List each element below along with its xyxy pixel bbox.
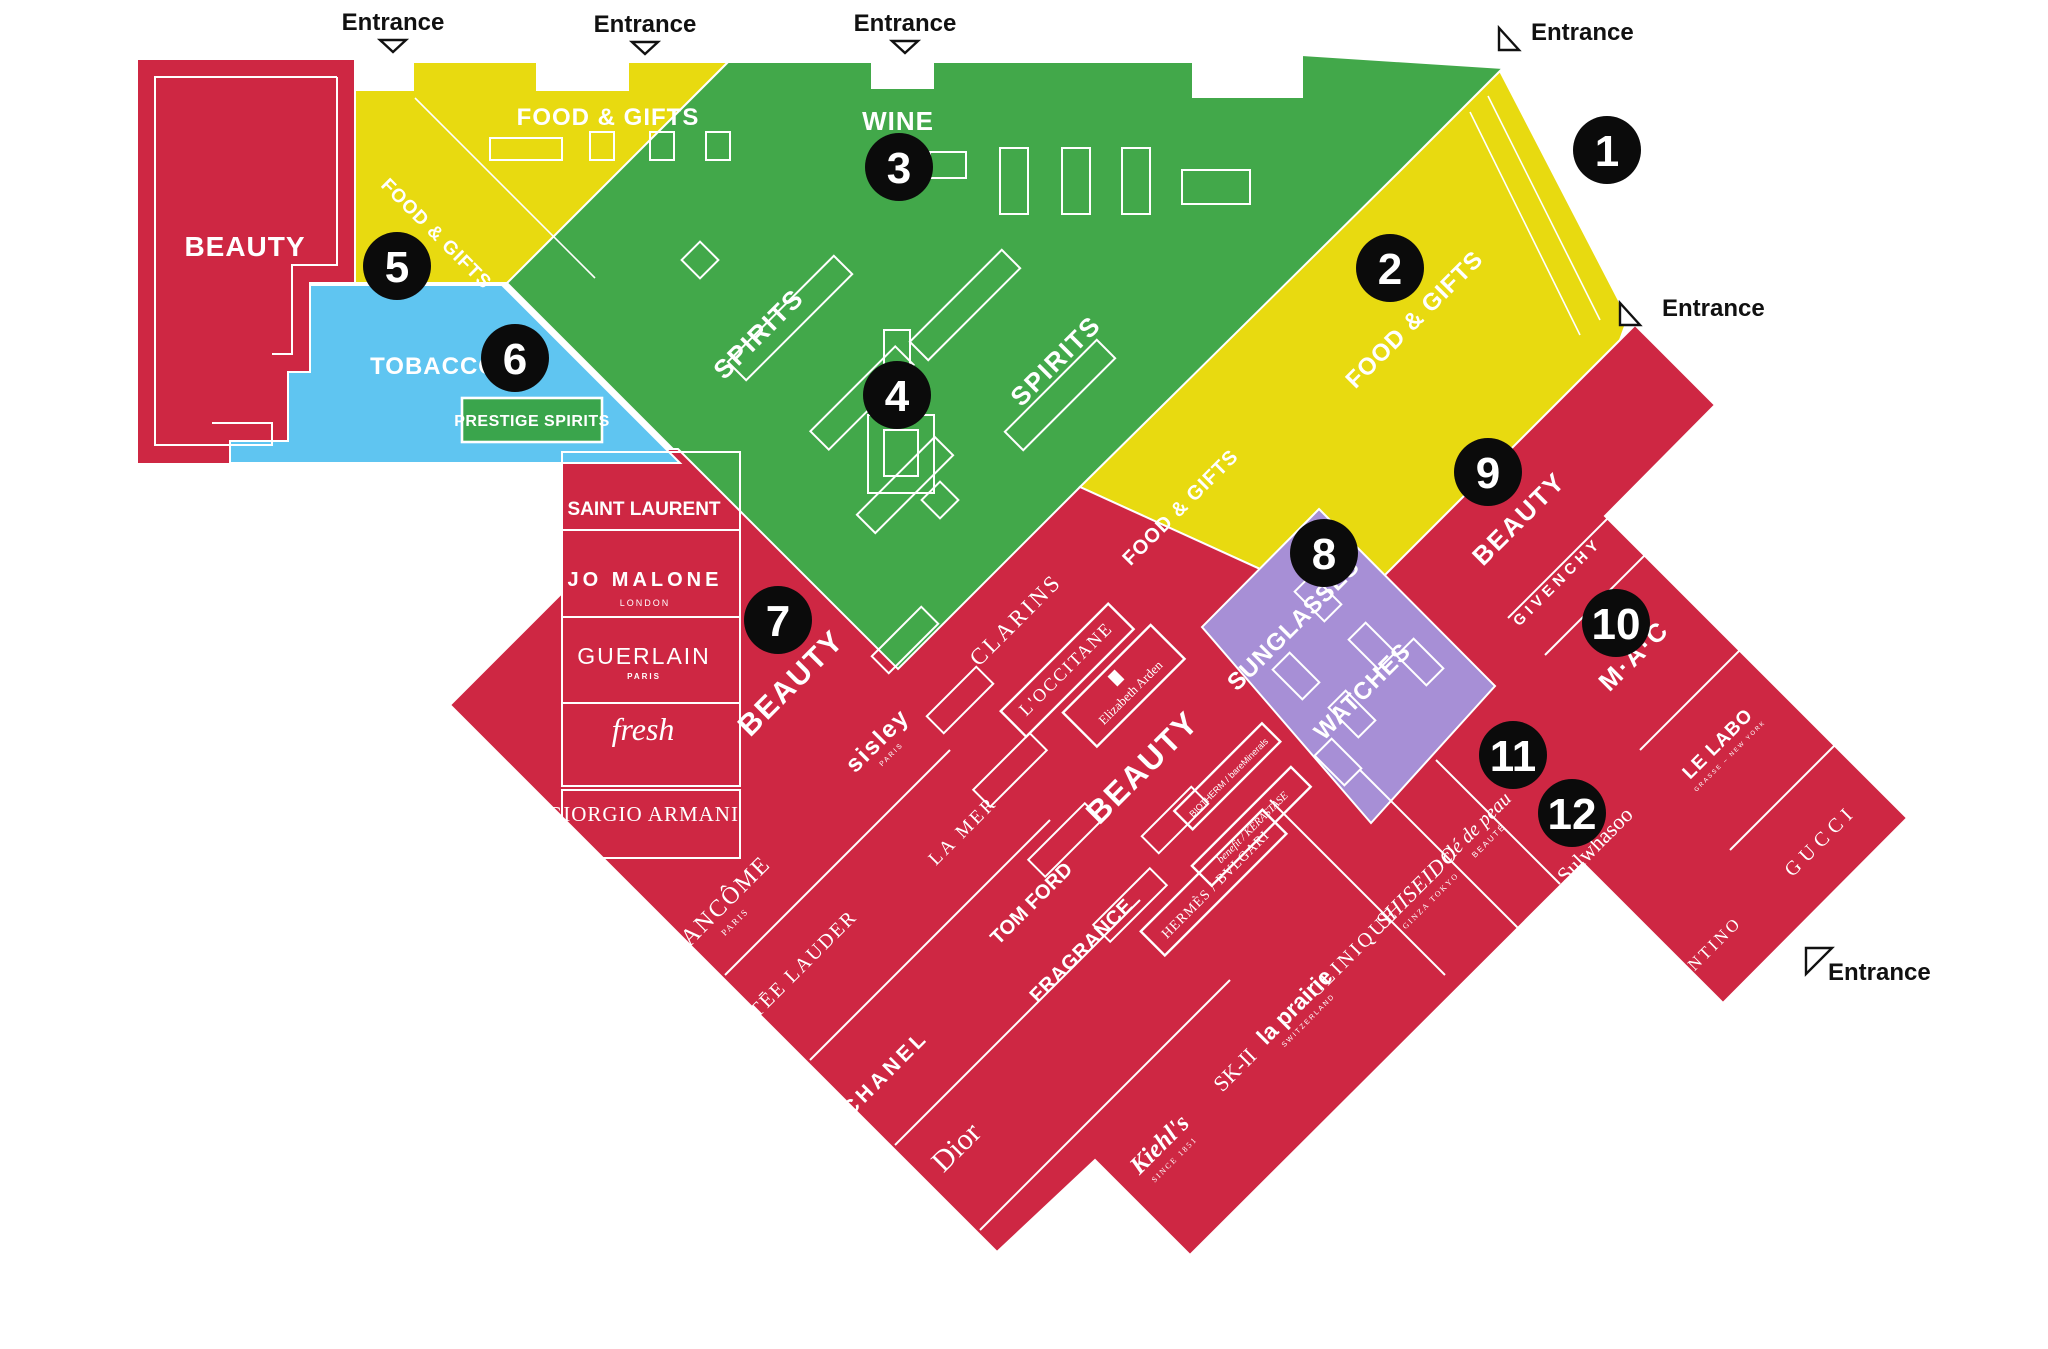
entrance-arrow-icon (1499, 28, 1519, 50)
svg-text:GUERLAIN: GUERLAIN (577, 643, 711, 669)
entrance-top-2: Entrance (594, 11, 697, 54)
svg-text:12: 12 (1548, 790, 1597, 839)
svg-text:Entrance: Entrance (1828, 959, 1931, 986)
svg-text:Entrance: Entrance (1662, 295, 1765, 322)
svg-text:5: 5 (385, 243, 409, 292)
svg-text:9: 9 (1476, 449, 1500, 498)
marker-8: 8 (1290, 519, 1358, 587)
svg-text:Entrance: Entrance (594, 11, 697, 38)
entrance-bottom-right: Entrance (1806, 948, 1931, 986)
entrance-top-right: Entrance (1499, 19, 1634, 50)
svg-text:JO MALONE: JO MALONE (568, 569, 723, 591)
svg-text:6: 6 (503, 335, 527, 384)
prestige-spirits-label: PRESTIGE SPIRITS (454, 413, 610, 430)
zone-label-beauty-topleft: BEAUTY (184, 231, 305, 262)
brand-giorgio-armani: GIORGIO ARMANI (547, 802, 739, 826)
svg-text:PARIS: PARIS (627, 672, 661, 681)
marker-1: 1 (1573, 116, 1641, 184)
svg-text:Entrance: Entrance (342, 9, 445, 36)
svg-text:Entrance: Entrance (854, 10, 957, 37)
dutyfree-floorplan-map: PRESTIGE SPIRITS BEAUTY FOOD & GIFTS FOO… (0, 0, 2048, 1349)
marker-5: 5 (363, 232, 431, 300)
svg-text:8: 8 (1312, 530, 1336, 579)
zone-label-wine: WINE (862, 106, 934, 136)
zone-label-tobacco: TOBACCO (370, 353, 498, 380)
marker-6: 6 (481, 324, 549, 392)
entrance-top-1: Entrance (342, 9, 445, 52)
marker-11: 11 (1479, 721, 1547, 789)
marker-9: 9 (1454, 438, 1522, 506)
brand-saint-laurent: SAINT LAURENT (567, 499, 720, 520)
entrance-arrow-icon (632, 42, 658, 54)
marker-7: 7 (744, 586, 812, 654)
zone-label-food-gifts-top: FOOD & GIFTS (517, 104, 700, 131)
marker-12: 12 (1538, 779, 1606, 847)
entrance-arrow-icon (892, 41, 918, 53)
marker-2: 2 (1356, 234, 1424, 302)
marker-3: 3 (865, 133, 933, 201)
brand-fresh: fresh (612, 711, 675, 747)
entrance-arrow-icon (380, 40, 406, 52)
svg-text:4: 4 (885, 372, 910, 421)
marker-4: 4 (863, 361, 931, 429)
entrance-arrow-icon (1620, 303, 1640, 325)
svg-text:Entrance: Entrance (1531, 19, 1634, 46)
svg-text:1: 1 (1595, 127, 1619, 176)
svg-text:7: 7 (766, 597, 790, 646)
floorplan-svg: PRESTIGE SPIRITS BEAUTY FOOD & GIFTS FOO… (0, 0, 2048, 1344)
svg-text:LONDON: LONDON (620, 598, 671, 608)
entrance-right: Entrance (1620, 295, 1765, 325)
entrance-top-3: Entrance (854, 10, 957, 53)
svg-text:3: 3 (887, 144, 911, 193)
svg-text:11: 11 (1490, 732, 1537, 781)
svg-text:2: 2 (1378, 245, 1402, 294)
svg-text:10: 10 (1592, 600, 1641, 649)
prestige-spirits-box: PRESTIGE SPIRITS (454, 398, 610, 442)
marker-10: 10 (1582, 589, 1650, 657)
